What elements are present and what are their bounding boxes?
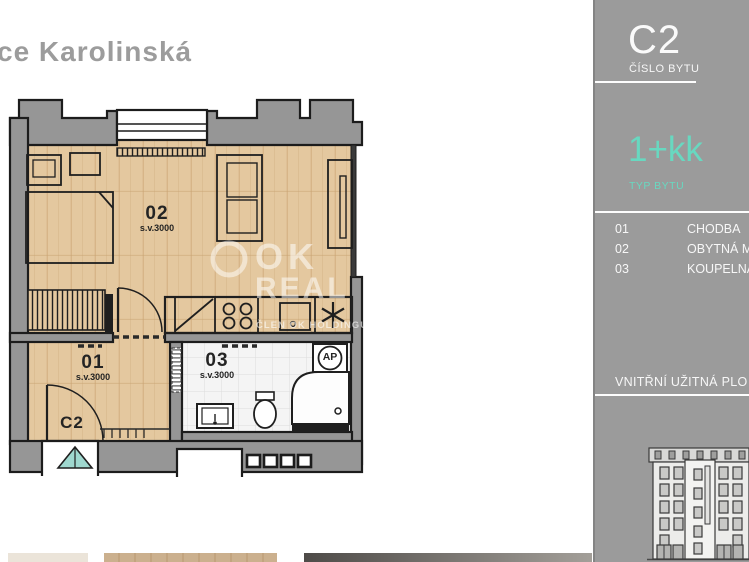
room-name: CHODBA	[687, 222, 740, 236]
photo-thumbnail[interactable]	[104, 553, 277, 562]
room-list-row: 02 OBYTNÁ M	[595, 242, 749, 262]
room-list-row: 01 CHODBA	[595, 222, 749, 242]
unit-type-caption: TYP BYTU	[629, 180, 684, 192]
unit-entrance-label: C2	[60, 413, 84, 433]
stairwell-window	[705, 466, 710, 524]
divider-line	[595, 211, 749, 213]
room-number: 03	[615, 262, 629, 276]
unit-number: C2	[628, 18, 681, 63]
room-label-bath: 03	[205, 350, 228, 372]
wardrobe-hatch	[28, 290, 105, 330]
photo-thumbnail[interactable]	[304, 553, 592, 562]
ceiling-height-note: s.v.3000	[76, 372, 110, 382]
room-label-hall: 01	[81, 352, 104, 374]
building-illustration	[647, 444, 749, 562]
bathtub	[292, 372, 349, 424]
area-caption: VNITŘNÍ UŽITNÁ PLO	[615, 375, 748, 389]
washing-machine-label: AP	[323, 351, 338, 363]
divider-line	[595, 81, 696, 83]
room-name: OBYTNÁ M	[687, 242, 749, 256]
photo-thumbnail[interactable]	[8, 553, 88, 562]
radiator	[117, 148, 205, 156]
room-number: 02	[615, 242, 629, 256]
watermark-tagline: ČLEN OK HOLDINGU	[256, 320, 368, 331]
bathroom-door-opening	[172, 348, 181, 392]
window	[117, 110, 207, 140]
wall-stub	[105, 294, 113, 334]
ceiling-height-note: s.v.3000	[200, 370, 234, 380]
room-list-row: 03 KOUPELNA	[595, 262, 749, 282]
watermark-word2: REAL	[255, 272, 349, 306]
unit-card-page: ce Karolinská	[0, 0, 749, 562]
sidebar: C2 ČÍSLO BYTU 1+kk TYP BYTU 01 CHODBA 02…	[593, 0, 749, 562]
room-number: 01	[615, 222, 629, 236]
unit-type: 1+kk	[628, 130, 703, 170]
ceiling-height-note: s.v.3000	[140, 223, 174, 233]
toilet	[256, 392, 274, 400]
room-label-living: 02	[145, 203, 168, 225]
wall-recess	[177, 449, 242, 477]
divider-line	[595, 394, 749, 396]
unit-number-caption: ČÍSLO BYTU	[629, 63, 699, 75]
room-name: KOUPELNA	[687, 262, 749, 276]
